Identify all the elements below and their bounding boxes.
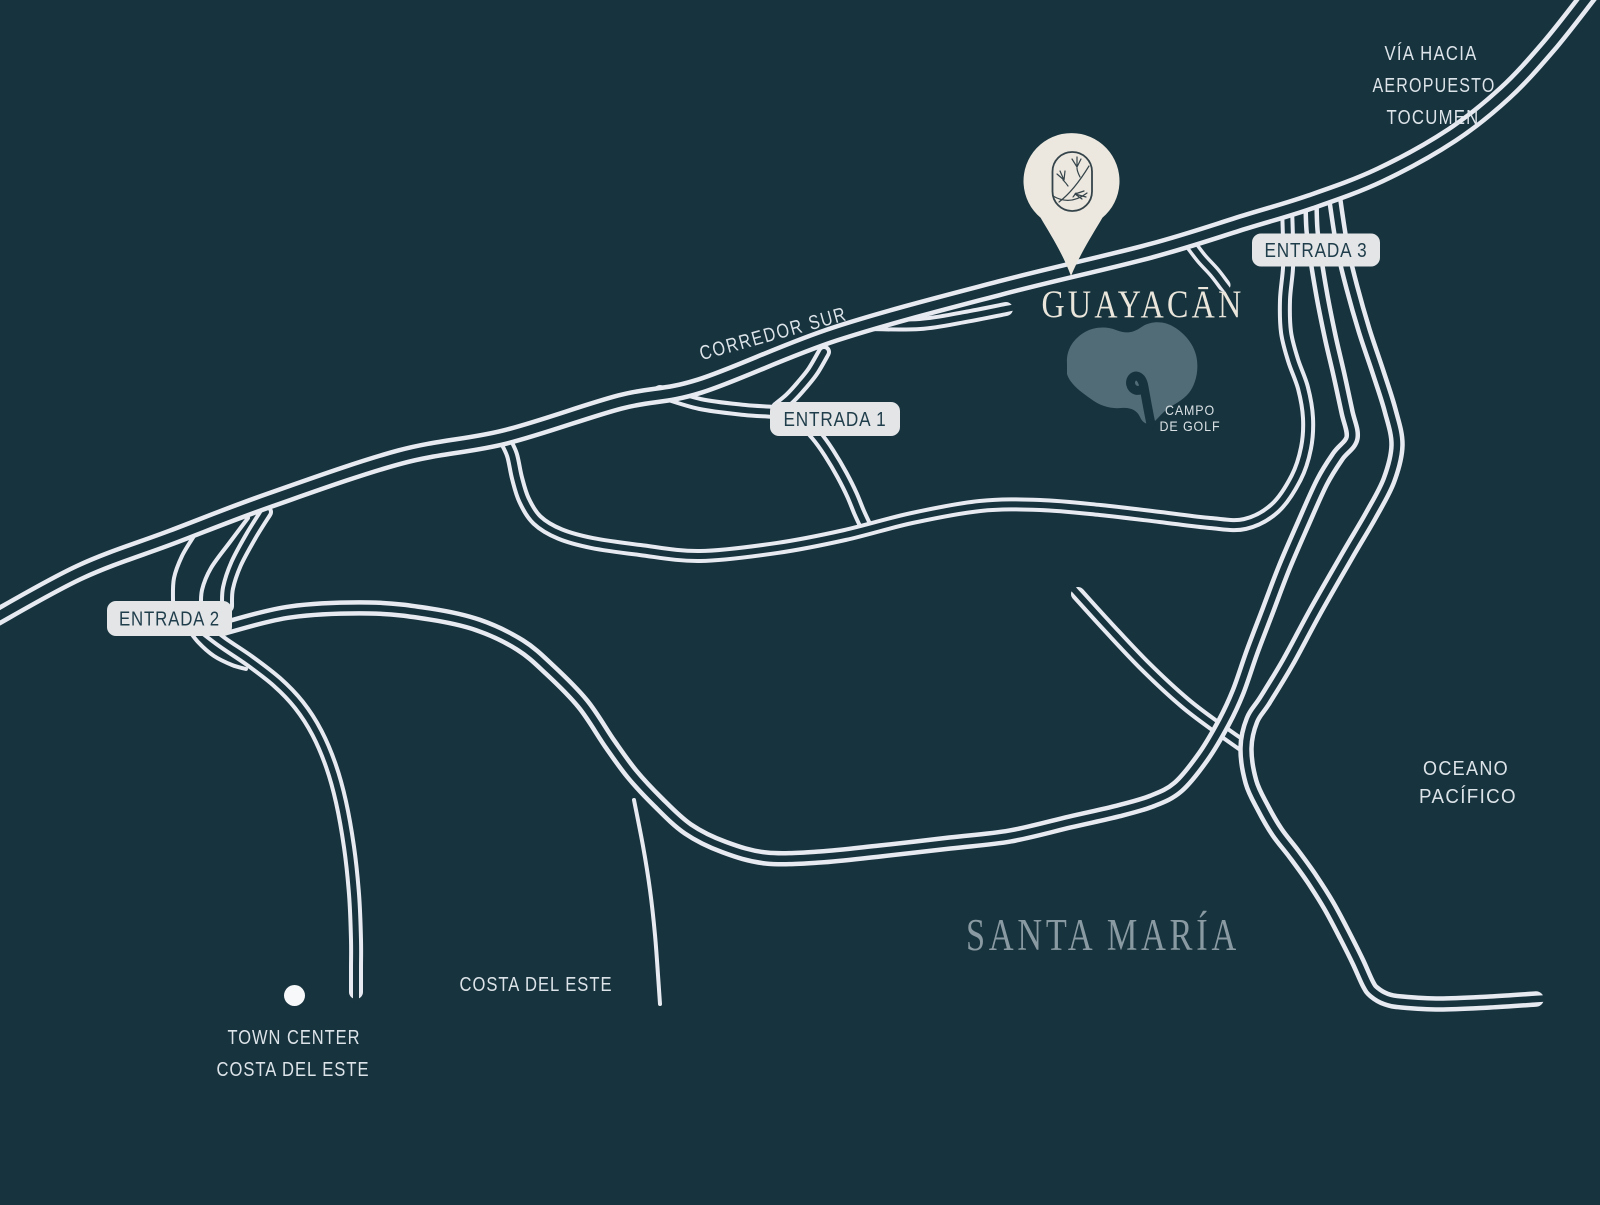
svg-text:COSTA DEL ESTE: COSTA DEL ESTE <box>217 1059 370 1081</box>
svg-text:ENTRADA 3: ENTRADA 3 <box>1265 239 1368 262</box>
svg-text:ENTRADA 1: ENTRADA 1 <box>784 408 887 431</box>
svg-text:CAMPO: CAMPO <box>1165 402 1215 418</box>
svg-text:SANTA MARÍA: SANTA MARÍA <box>966 910 1240 960</box>
svg-text:TOCUMEN: TOCUMEN <box>1387 107 1480 129</box>
svg-text:ENTRADA 2: ENTRADA 2 <box>119 608 220 631</box>
svg-text:VÍA HACIA: VÍA HACIA <box>1385 42 1478 65</box>
svg-text:AEROPUESTO: AEROPUESTO <box>1373 75 1496 97</box>
svg-text:DE GOLF: DE GOLF <box>1160 418 1221 434</box>
svg-text:COSTA DEL ESTE: COSTA DEL ESTE <box>460 974 613 996</box>
svg-text:PACÍFICO: PACÍFICO <box>1419 785 1517 808</box>
svg-text:TOWN CENTER: TOWN CENTER <box>228 1027 361 1049</box>
svg-text:GUAYACĀN: GUAYACĀN <box>1042 283 1245 326</box>
svg-text:OCEANO: OCEANO <box>1423 757 1509 780</box>
